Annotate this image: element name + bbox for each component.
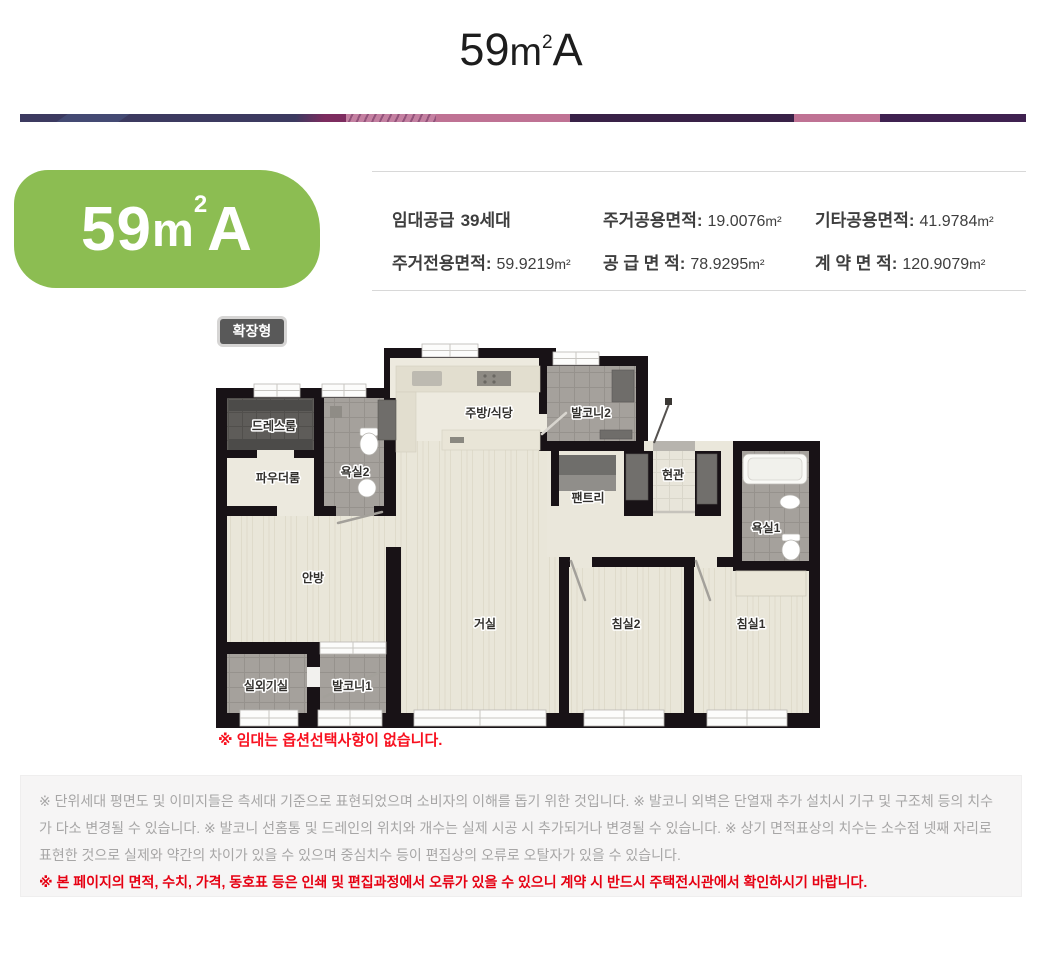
info-unit: m² [765,213,781,229]
info-label: 공 급 면 적: [603,254,685,273]
info-item-contract-area: 계 약 면 적:120.9079m² [815,249,985,274]
bar-segment [56,114,129,122]
unit-type-badge: 59m2A [14,170,320,288]
floor-bed2 [569,567,684,713]
badge-unit-m: m [152,202,194,257]
bar-segment [436,114,570,122]
bar-segment [274,114,346,122]
floor-living [386,441,564,713]
room-label-balcony2: 발코니2 [571,405,611,420]
page-title: 59m2A [0,24,1042,76]
room-label-outdoor-unit: 실외기실 [244,678,288,693]
info-value: 59.9219 [497,256,555,273]
page: 59m2A 59m2A 임대공급39세대 주거전용면적:59.9219m² 주거… [0,0,1042,954]
info-value: 78.9295 [690,256,748,273]
bar-segment [880,114,1026,122]
room-label-bath1: 욕실1 [752,520,781,535]
title-unit-sup: 2 [542,32,553,53]
lease-prefix: 임대공급 [392,211,455,230]
info-item-shared-area: 주거공용면적:19.0076m² [603,206,782,231]
bar-segment-hatched [346,114,436,122]
badge-number: 59 [81,194,152,265]
info-unit: m² [969,256,985,272]
room-label-kitchen: 주방/식당 [465,405,513,420]
bar-segment [570,114,794,122]
unit-info-panel: 임대공급39세대 주거전용면적:59.9219m² 주거공용면적:19.0076… [372,171,1026,291]
pantry-shelves [559,455,616,491]
info-item-other-area: 기타공용면적:41.9784m² [815,206,994,231]
title-type-letter: A [553,24,583,75]
info-item-supply-area: 공 급 면 적:78.9295m² [603,249,765,274]
info-unit: m² [554,256,570,272]
bar-segment [794,114,880,122]
info-unit: m² [748,256,764,272]
room-label-pantry: 팬트리 [571,490,604,505]
lease-option-note: ※ 임대는 옵션선택사항이 없습니다. [218,729,442,750]
bed1-cabinet [736,571,806,596]
title-number: 59 [459,24,509,75]
entrance-door-swing [654,398,672,443]
room-label-master: 안방 [302,570,324,585]
badge-type-letter: A [207,194,253,265]
info-label: 기타공용면적: [815,211,915,230]
decorative-gradient-bar [20,114,1026,122]
room-label-bed2: 침실2 [612,616,641,631]
info-item-exclusive-area: 주거전용면적:59.9219m² [392,249,571,274]
warning-text: ※ 본 페이지의 면적, 수치, 가격, 동호표 등은 인쇄 및 편집과정에서 … [39,869,1003,896]
floor-plan: 드레스룸 파우더룸 욕실2 주방/식당 발코니2 현관 팬트리 욕실1 안방 거… [214,342,826,734]
room-label-powder: 파우더룸 [256,470,300,485]
info-value: 41.9784 [920,213,978,230]
floor-bath2 [314,398,384,516]
lease-count: 39 [461,211,480,230]
info-value: 120.9079 [902,256,969,273]
room-label-bed1: 침실1 [737,616,766,631]
room-label-living: 거실 [474,616,496,631]
lease-suffix: 세대 [479,211,510,230]
info-unit: m² [977,213,993,229]
title-unit-m: m [509,31,542,74]
disclaimer-box: ※ 단위세대 평면도 및 이미지들은 측세대 기준으로 표현되었으며 소비자의 … [20,775,1022,897]
room-label-bath2: 욕실2 [341,464,370,479]
info-label: 주거공용면적: [603,211,703,230]
room-label-entrance: 현관 [662,467,684,482]
info-value: 19.0076 [708,213,766,230]
disclaimer-text: ※ 단위세대 평면도 및 이미지들은 측세대 기준으로 표현되었으며 소비자의 … [39,788,1003,869]
info-label: 계 약 면 적: [815,254,897,273]
room-label-balcony1: 발코니1 [332,678,372,693]
plan-type-badge: 확장형 [220,319,284,344]
info-label: 주거전용면적: [392,254,492,273]
room-label-dressroom: 드레스룸 [252,418,296,433]
badge-unit-sup: 2 [194,191,207,219]
lease-supply: 임대공급39세대 [392,206,511,231]
closet [378,400,396,440]
entrance-door-strip [653,441,695,451]
